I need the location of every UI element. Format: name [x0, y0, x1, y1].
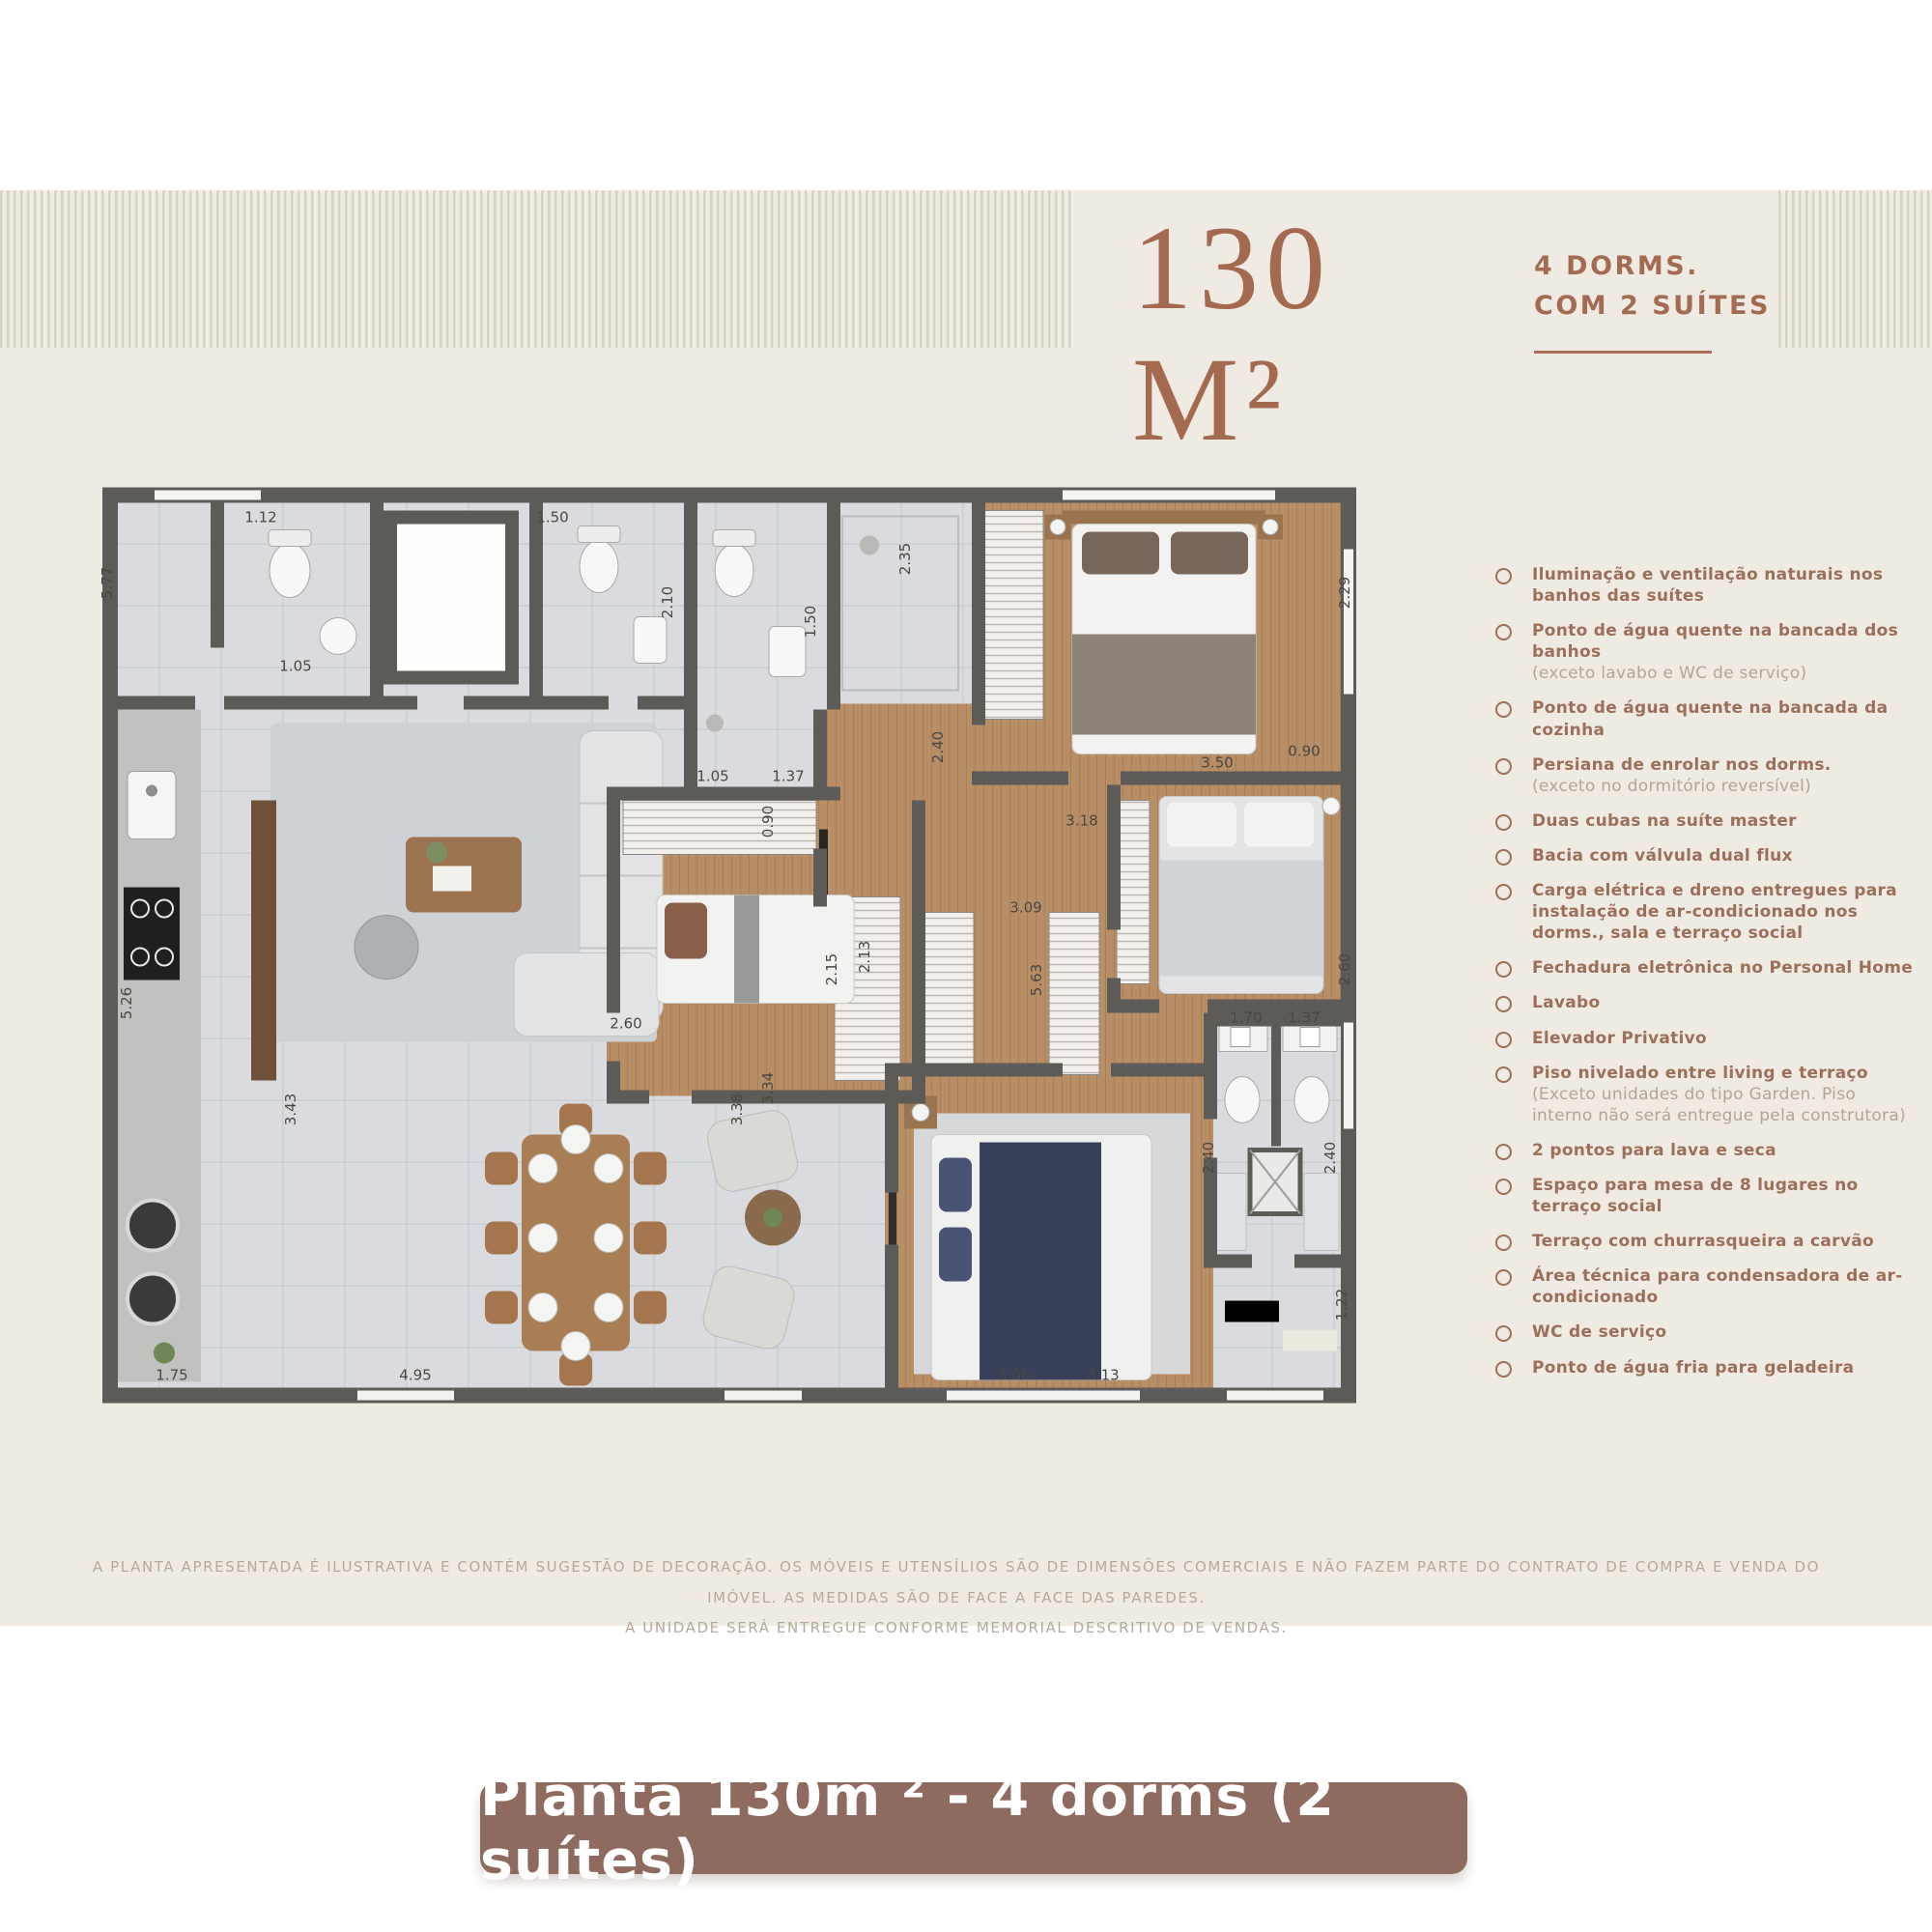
bullet-icon — [1495, 1144, 1512, 1160]
disclaimer-line2: A UNIDADE SERÁ ENTREGUE CONFORME MEMORIA… — [625, 1619, 1288, 1636]
shower-head — [706, 715, 724, 732]
feature-item: Duas cubas na suíte master — [1495, 810, 1917, 832]
feature-text: Iluminação e ventilação naturais nos ban… — [1532, 564, 1917, 607]
dimension-label: 0.90 — [1288, 743, 1320, 760]
washer — [128, 1201, 178, 1251]
disclaimer: A PLANTA APRESENTADA É ILUSTRATIVA E CON… — [87, 1552, 1826, 1644]
feature-item: Ponto de água fria para geladeira — [1495, 1357, 1917, 1378]
plant — [763, 1208, 782, 1228]
dimension-label: 1.12 — [244, 509, 276, 526]
bullet-icon — [1495, 568, 1512, 584]
subtitle-line2: COM 2 SUÍTES — [1534, 287, 1771, 327]
feature-item: 2 pontos para lava e seca — [1495, 1140, 1917, 1161]
feature-item: Área técnica para condensadora de ar-con… — [1495, 1265, 1917, 1308]
suite-1 — [980, 511, 1283, 754]
bullet-icon — [1495, 849, 1512, 866]
blanket — [1072, 635, 1256, 735]
dimension-label: 1.37 — [1288, 1009, 1320, 1027]
sink — [769, 627, 806, 677]
shower — [1304, 1174, 1339, 1251]
dimension-label: 1.70 — [1230, 1009, 1262, 1027]
bench — [1225, 1301, 1279, 1322]
feature-item: Persiana de enrolar nos dorms.(exceto no… — [1495, 754, 1917, 797]
feature-note: (Exceto unidades do tipo Garden. Piso in… — [1532, 1084, 1917, 1126]
floor-plan-svg: 5.771.121.051.502.101.501.051.372.352.40… — [97, 480, 1362, 1410]
lamp — [1322, 798, 1340, 815]
dimension-label: 3.06 — [998, 1367, 1030, 1384]
dimension-label: 3.38 — [728, 1094, 746, 1125]
dimension-label: 0.90 — [759, 806, 777, 838]
feature-list: Iluminação e ventilação naturais nos ban… — [1495, 564, 1917, 1392]
plant — [154, 1343, 175, 1364]
feature-item: Piso nivelado entre living e terraço(Exc… — [1495, 1063, 1917, 1126]
dimension-label: 1.37 — [772, 768, 804, 785]
dimension-label: 2.40 — [1321, 1142, 1339, 1174]
dimension-label: 3.09 — [1009, 899, 1041, 917]
feature-text: Ponto de água fria para geladeira — [1532, 1357, 1854, 1378]
kitchen — [118, 710, 201, 1382]
master-suite — [889, 1096, 1190, 1380]
toilet — [1225, 1077, 1260, 1123]
bullet-icon — [1495, 1032, 1512, 1048]
feature-item: Lavabo — [1495, 992, 1917, 1013]
feature-text: Terraço com churrasqueira a carvão — [1532, 1231, 1874, 1252]
bullet-icon — [1495, 1235, 1512, 1251]
side-table — [355, 916, 418, 980]
private-elevator — [384, 511, 519, 685]
feature-text: WC de serviço — [1532, 1321, 1666, 1343]
navy-duvet — [980, 1143, 1101, 1380]
dimension-label: 2.35 — [896, 543, 914, 575]
duvet — [1159, 861, 1323, 977]
toilet — [270, 544, 310, 598]
feature-text: Piso nivelado entre living e terraço(Exc… — [1532, 1063, 1917, 1126]
faucet — [146, 785, 157, 797]
feature-text: Duas cubas na suíte master — [1532, 810, 1797, 832]
dimension-label: 1.05 — [696, 768, 728, 785]
bullet-icon — [1495, 1361, 1512, 1378]
plant — [426, 842, 447, 864]
feature-text: Espaço para mesa de 8 lugares no terraço… — [1532, 1175, 1917, 1217]
cooktop — [124, 888, 180, 980]
closet — [923, 913, 974, 1075]
feature-item: Fechadura eletrônica no Personal Home — [1495, 957, 1917, 979]
wardrobe — [623, 801, 816, 855]
feature-text: Ponto de água quente na bancada da cozin… — [1532, 697, 1917, 740]
bullet-icon — [1495, 961, 1512, 978]
feature-item: Ponto de água quente na bancada da cozin… — [1495, 697, 1917, 740]
floor-plan: 5.771.121.051.502.101.501.051.372.352.40… — [97, 480, 1362, 1410]
dimension-label: 3.13 — [1087, 1367, 1119, 1384]
feature-item: Carga elétrica e dreno entregues para in… — [1495, 880, 1917, 944]
bed-runner — [734, 895, 759, 1004]
caption-text: Planta 130m ² - 4 dorms (2 suítes) — [480, 1765, 1467, 1892]
deco-stripes-left — [0, 190, 1075, 348]
elevator-cab — [397, 525, 505, 671]
dimension-label: 2.40 — [929, 731, 947, 763]
dimension-label: 2.40 — [1200, 1142, 1217, 1174]
bullet-icon — [1495, 1325, 1512, 1342]
dimension-label: 2.60 — [610, 1015, 641, 1033]
subtitle-line1: 4 DORMS. — [1534, 247, 1771, 287]
feature-item: Iluminação e ventilação naturais nos ban… — [1495, 564, 1917, 607]
shower-head — [860, 536, 879, 555]
caption-pill: Planta 130m ² - 4 dorms (2 suítes) — [480, 1782, 1467, 1874]
technical-shaft — [1250, 1151, 1300, 1214]
dimension-label: 1.50 — [536, 509, 568, 526]
sideboard — [251, 801, 276, 1081]
feature-item: Elevador Privativo — [1495, 1028, 1917, 1049]
dimension-label: 1.22 — [1333, 1289, 1350, 1321]
subtitle-underline — [1534, 351, 1712, 354]
deco-stripes-right — [1778, 190, 1932, 348]
bullet-icon — [1495, 1269, 1512, 1286]
floorplan-sheet: 130 M² 4 DORMS. COM 2 SUÍTES — [0, 0, 1932, 1932]
pillow — [939, 1158, 972, 1212]
feature-text: Bacia com válvula dual flux — [1532, 845, 1793, 867]
dimension-label: 3.50 — [1201, 754, 1233, 772]
bullet-icon — [1495, 884, 1512, 900]
dimension-label: 3.34 — [759, 1072, 777, 1104]
dimension-label: 2.15 — [823, 953, 840, 985]
wardrobe — [980, 511, 1043, 720]
feature-note: (exceto no dormitório reversível) — [1532, 776, 1832, 797]
bullet-icon — [1495, 758, 1512, 775]
page-title: 130 M² — [1132, 203, 1519, 467]
feature-item: Espaço para mesa de 8 lugares no terraço… — [1495, 1175, 1917, 1217]
toilet — [580, 541, 618, 593]
feature-text: Fechadura eletrônica no Personal Home — [1532, 957, 1913, 979]
dimension-label: 1.50 — [802, 606, 819, 638]
subtitle: 4 DORMS. COM 2 SUÍTES — [1534, 247, 1771, 354]
dimension-label: 2.10 — [659, 586, 676, 618]
dimension-label: 4.95 — [399, 1367, 431, 1384]
wardrobe — [1117, 801, 1150, 984]
feature-note: (exceto lavabo e WC de serviço) — [1532, 663, 1917, 684]
feature-text: Carga elétrica e dreno entregues para in… — [1532, 880, 1917, 944]
pillow — [939, 1228, 972, 1282]
closet — [1049, 913, 1099, 1075]
dimension-label: 1.05 — [279, 658, 311, 675]
feature-text: Ponto de água quente na bancada dos banh… — [1532, 620, 1917, 684]
feature-item: Ponto de água quente na bancada dos banh… — [1495, 620, 1917, 684]
dryer — [128, 1274, 178, 1324]
feature-text: Lavabo — [1532, 992, 1601, 1013]
bench — [1283, 1330, 1337, 1351]
dimension-label: 2.13 — [856, 941, 873, 973]
bullet-icon — [1495, 701, 1512, 718]
pillow — [1167, 803, 1236, 847]
dimension-label: 5.26 — [118, 987, 135, 1019]
feature-item: WC de serviço — [1495, 1321, 1917, 1343]
dimension-label: 3.18 — [1065, 812, 1097, 830]
dimension-label: 5.77 — [99, 567, 116, 599]
headboard — [1063, 511, 1265, 525]
dimension-label: 1.75 — [156, 1367, 187, 1384]
kitchen-sink — [128, 772, 176, 839]
toilet — [715, 545, 753, 597]
bullet-icon — [1495, 624, 1512, 640]
bullet-icon — [1495, 1066, 1512, 1083]
dimension-label: 5.63 — [1028, 964, 1045, 996]
book — [433, 867, 471, 892]
feature-item: Bacia com válvula dual flux — [1495, 845, 1917, 867]
feature-text: Elevador Privativo — [1532, 1028, 1707, 1049]
feature-item: Terraço com churrasqueira a carvão — [1495, 1231, 1917, 1252]
sink — [320, 618, 356, 655]
pillow — [1244, 803, 1314, 847]
feature-text: Área técnica para condensadora de ar-con… — [1532, 1265, 1917, 1308]
feature-text: 2 pontos para lava e seca — [1532, 1140, 1776, 1161]
dimension-label: 3.43 — [282, 1094, 299, 1125]
feature-text: Persiana de enrolar nos dorms.(exceto no… — [1532, 754, 1832, 797]
sink — [634, 617, 667, 664]
toilet — [1294, 1077, 1329, 1123]
pillow — [1082, 532, 1159, 575]
bullet-icon — [1495, 996, 1512, 1012]
dimension-label: 2.60 — [1336, 953, 1353, 985]
disclaimer-line1: A PLANTA APRESENTADA É ILUSTRATIVA E CON… — [93, 1558, 1820, 1606]
dimension-label: 2.29 — [1336, 577, 1353, 609]
pillow — [665, 903, 707, 959]
bullet-icon — [1495, 1179, 1512, 1195]
bullet-icon — [1495, 814, 1512, 831]
pillow — [1171, 532, 1248, 575]
